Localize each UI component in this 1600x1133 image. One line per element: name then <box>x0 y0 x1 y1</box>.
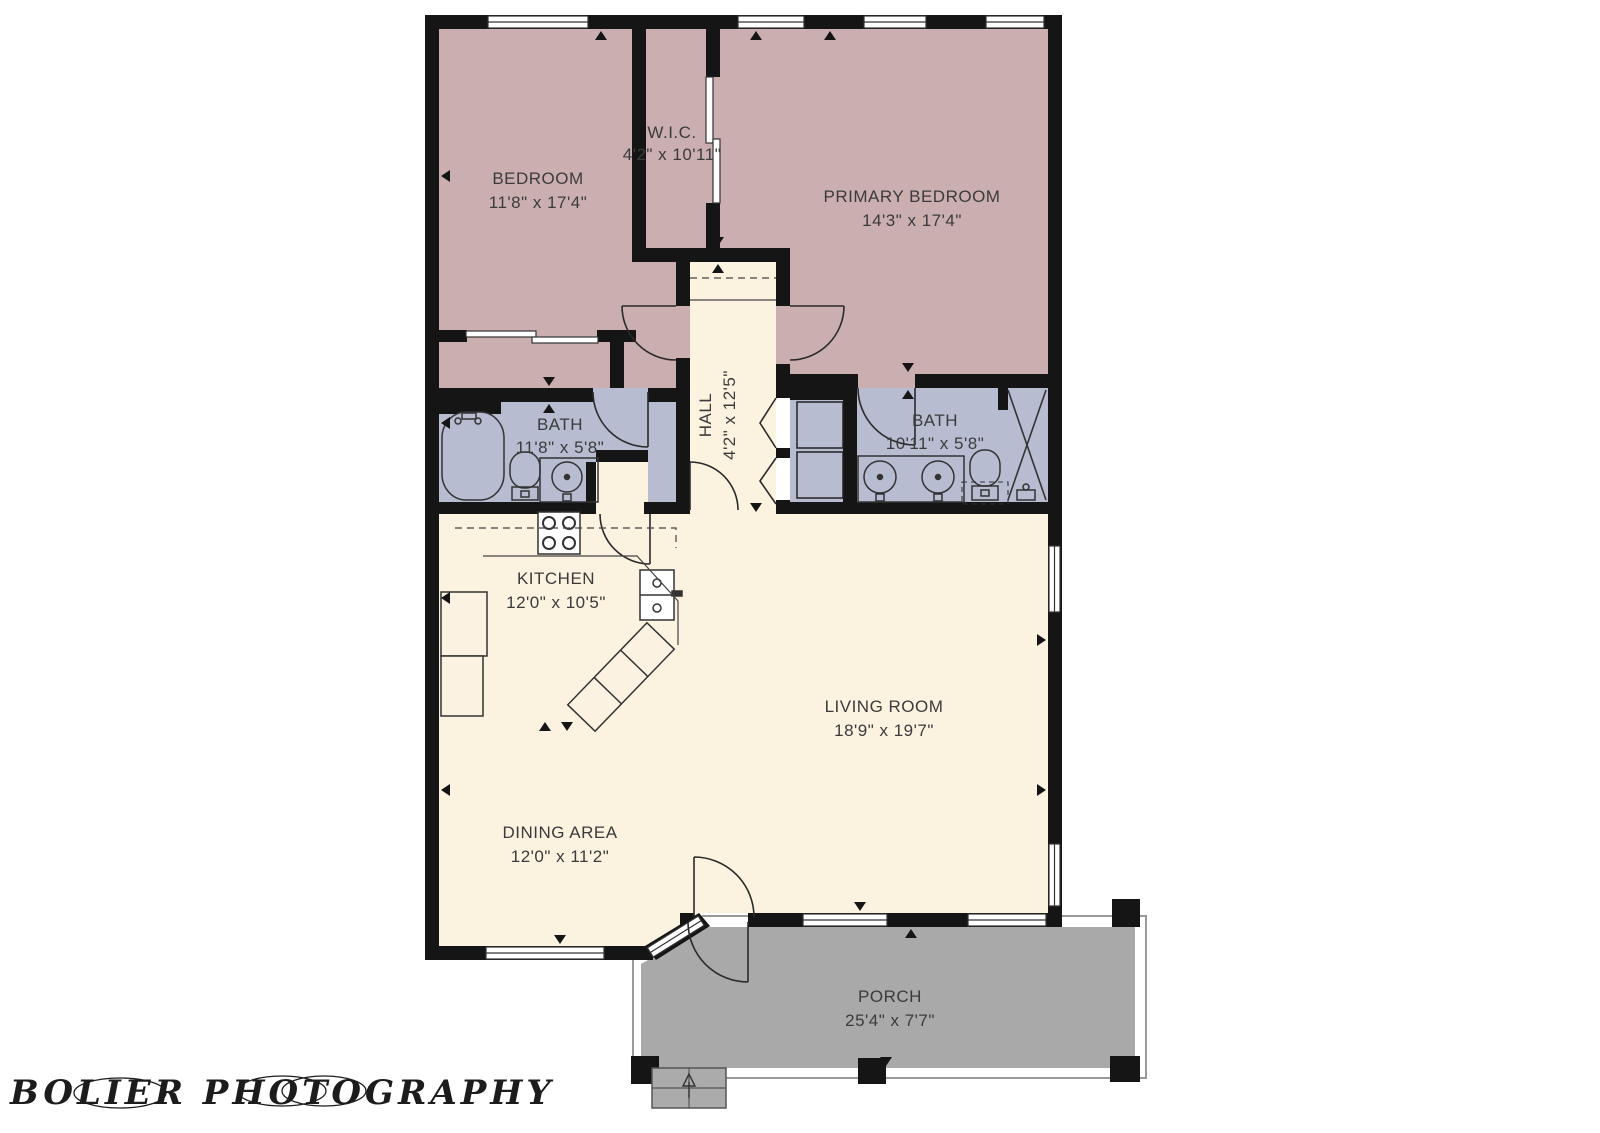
wall-vestibule-bottom <box>644 502 676 514</box>
dining-area-dims: 12'0" x 11'2" <box>511 847 609 866</box>
primary-bedroom-label: PRIMARY BEDROOM <box>824 187 1001 206</box>
porch-post <box>1110 1056 1140 1082</box>
porch-post <box>1112 899 1140 927</box>
window <box>486 947 604 959</box>
wall-bath-right-top-left <box>776 374 858 388</box>
wall-left <box>425 15 439 960</box>
wall-hall-right-stub <box>776 448 790 458</box>
wall-bath-right-top-right <box>915 374 1048 388</box>
bath-right-dims: 10'11" x 5'8" <box>886 434 984 453</box>
wall-hall-left-lower <box>676 358 690 514</box>
bath-vestibule-floor <box>596 462 648 502</box>
wall-wic-bottom <box>632 248 790 262</box>
bedroom-dims: 11'8" x 17'4" <box>489 193 587 212</box>
primary-bedroom-dims: 14'3" x 17'4" <box>862 211 962 230</box>
living-room-dims: 18'9" x 19'7" <box>834 721 934 740</box>
window <box>864 16 926 28</box>
porch-label: PORCH <box>858 987 922 1006</box>
window <box>968 914 1046 926</box>
refrigerator-icon <box>441 592 487 716</box>
wall-hall-right-upper <box>776 262 790 306</box>
dining-area-label: DINING AREA <box>502 823 617 842</box>
hall-dims: 4'2" x 12'5" <box>720 370 739 460</box>
watermark-text: BOLIER PHOTOGRAPHY <box>9 1073 555 1113</box>
wall-right <box>1048 15 1062 927</box>
wall-vestibule-left <box>586 462 596 502</box>
floor-plan-svg: BEDROOM 11'8" x 17'4" W.I.C. 4'2" x 10'1… <box>0 0 1600 1133</box>
wall-wic-right-upper <box>706 29 720 77</box>
wall-bath-right-bottom <box>776 502 1048 514</box>
window <box>986 16 1044 28</box>
kitchen-dims: 12'0" x 10'5" <box>506 593 606 612</box>
wall-bath-left-chunk <box>439 388 501 414</box>
wic-label: W.I.C. <box>647 123 696 142</box>
floor-plan-page: BEDROOM 11'8" x 17'4" W.I.C. 4'2" x 10'1… <box>0 0 1600 1133</box>
wall-shower-stub <box>998 388 1008 410</box>
wic-dims: 4'2" x 10'11" <box>623 145 721 164</box>
window <box>488 16 588 28</box>
wall-bedroom-wic <box>632 29 646 252</box>
kitchen-label: KITCHEN <box>517 569 595 588</box>
bath-left-dims: 11'8" x 5'8" <box>516 438 605 457</box>
porch-dims: 25'4" x 7'7" <box>845 1011 935 1030</box>
wall-laundry-bath-divider <box>843 388 857 502</box>
bedroom-label: BEDROOM <box>492 169 583 188</box>
window <box>738 16 804 28</box>
wall-bath-left-top-stub <box>648 388 676 402</box>
window <box>1049 546 1060 612</box>
porch-steps <box>652 1068 726 1108</box>
bath-right-label: BATH <box>912 411 958 430</box>
wall-closet-left <box>439 330 467 342</box>
wall-laundry-top <box>790 388 843 400</box>
hall-label: HALL <box>696 393 715 438</box>
bathtub-icon <box>442 412 504 500</box>
watermark: BOLIER PHOTOGRAPHY <box>9 1073 555 1113</box>
window <box>1049 844 1060 906</box>
wall-hall-left-upper <box>676 262 690 306</box>
window <box>803 914 887 926</box>
stove-icon <box>538 512 580 554</box>
porch-post <box>858 1058 886 1084</box>
wall-closet-side <box>610 330 624 388</box>
bath-left-label: BATH <box>537 415 583 434</box>
living-room-label: LIVING ROOM <box>825 697 944 716</box>
